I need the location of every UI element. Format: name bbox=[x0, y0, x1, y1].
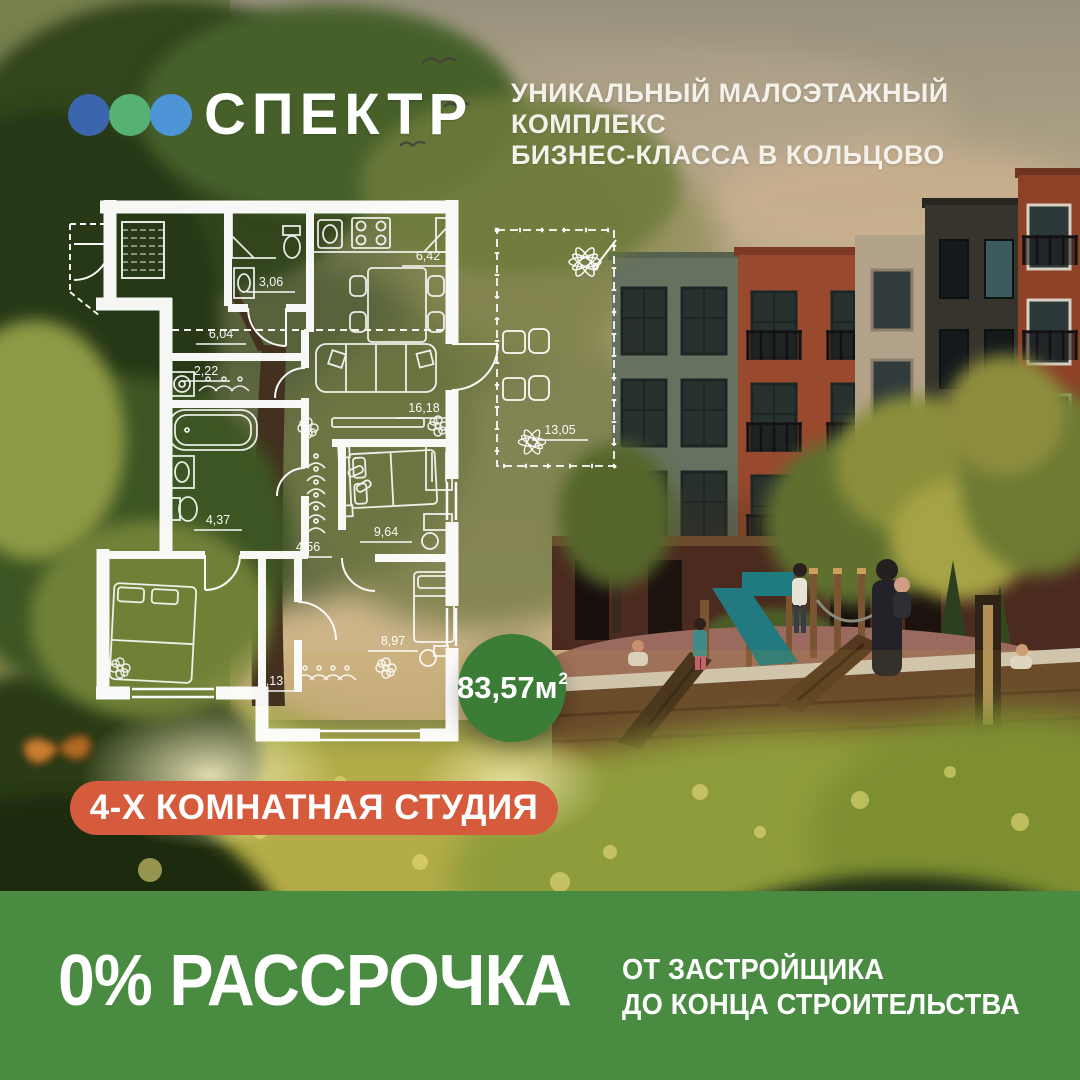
logo-dots-icon bbox=[68, 92, 192, 138]
room-area-label: 4,56 bbox=[296, 540, 320, 554]
room-area-label: 9,64 bbox=[374, 525, 398, 539]
offer-sub-line-2: ДО КОНЦА СТРОИТЕЛЬСТВА bbox=[622, 988, 1020, 1023]
area-badge: 83,57м2 bbox=[458, 634, 566, 742]
offer-headline: 0% РАССРОЧКА bbox=[58, 945, 571, 1017]
logo-dot-blue bbox=[68, 94, 110, 136]
room-area-label: 13,05 bbox=[544, 423, 575, 437]
tagline-line-1: УНИКАЛЬНЫЙ МАЛОЭТАЖНЫЙ КОМПЛЕКС bbox=[511, 78, 1080, 140]
offer-sub-line-1: ОТ ЗАСТРОЙЩИКА bbox=[622, 953, 1020, 988]
tagline-line-2: БИЗНЕС-КЛАССА В КОЛЬЦОВО bbox=[511, 140, 1080, 171]
brand-header: СПЕКТР bbox=[68, 86, 473, 144]
room-area-label: 16,18 bbox=[408, 401, 439, 415]
tagline: УНИКАЛЬНЫЙ МАЛОЭТАЖНЫЙ КОМПЛЕКС БИЗНЕС-К… bbox=[511, 78, 1080, 171]
area-value: 83,57м bbox=[457, 670, 558, 706]
label-underlines bbox=[182, 266, 588, 691]
room-area-label: 4,37 bbox=[206, 513, 230, 527]
offer-band: 0% РАССРОЧКА ОТ ЗАСТРОЙЩИКА ДО КОНЦА СТР… bbox=[0, 891, 1080, 1080]
plant-icon bbox=[518, 428, 545, 456]
room-area-label: 6,04 bbox=[209, 327, 233, 341]
room-area-label: 3,06 bbox=[259, 275, 283, 289]
brand-logo-text: СПЕКТР bbox=[204, 86, 473, 144]
room-area-label: 9,13 bbox=[259, 674, 283, 688]
apartment-type-badge: 4-Х КОМНАТНАЯ СТУДИЯ bbox=[70, 781, 558, 835]
poster: 6,42 3,06 6,04 2,22 16,18 13,05 4,37 9,6… bbox=[0, 0, 1080, 1080]
plant-icon bbox=[569, 246, 601, 279]
room-area-labels: 6,42 3,06 6,04 2,22 16,18 13,05 4,37 9,6… bbox=[194, 249, 576, 688]
offer-subtext: ОТ ЗАСТРОЙЩИКА ДО КОНЦА СТРОИТЕЛЬСТВА bbox=[622, 953, 1020, 1023]
logo-dot-green bbox=[109, 94, 151, 136]
room-area-label: 6,42 bbox=[416, 249, 440, 263]
room-area-label: 8,97 bbox=[381, 634, 405, 648]
logo-dot-lightblue bbox=[150, 94, 192, 136]
room-area-label: 2,22 bbox=[194, 364, 218, 378]
area-superscript: 2 bbox=[559, 669, 568, 689]
